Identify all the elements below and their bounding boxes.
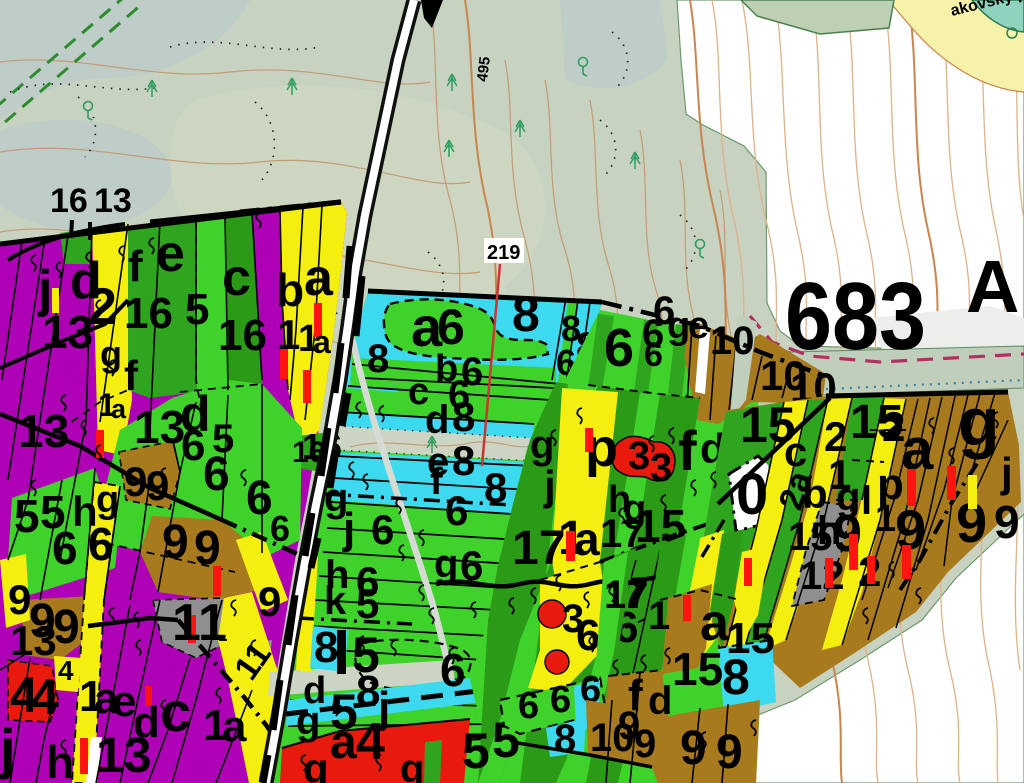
- svg-text:13: 13: [94, 182, 132, 220]
- svg-text:11: 11: [172, 594, 227, 652]
- svg-text:4: 4: [31, 669, 59, 725]
- svg-text:8: 8: [356, 667, 380, 716]
- svg-text:13: 13: [96, 727, 152, 783]
- svg-text:j: j: [1000, 449, 1013, 496]
- svg-text:16: 16: [124, 289, 173, 338]
- svg-text:6: 6: [181, 421, 205, 470]
- svg-text:9: 9: [53, 601, 80, 654]
- svg-text:3: 3: [650, 446, 672, 490]
- svg-text:5: 5: [462, 723, 490, 779]
- svg-text:8: 8: [452, 437, 475, 484]
- svg-text:g: g: [303, 745, 329, 783]
- svg-text:9: 9: [258, 578, 281, 625]
- svg-text:l: l: [861, 479, 872, 523]
- svg-text:13: 13: [10, 617, 57, 664]
- svg-text:d: d: [648, 679, 672, 723]
- svg-text:5: 5: [185, 285, 209, 334]
- svg-text:j: j: [342, 504, 355, 553]
- svg-text:6: 6: [52, 522, 78, 574]
- svg-text:g: g: [296, 699, 320, 743]
- svg-text:6: 6: [518, 685, 539, 727]
- svg-text:a: a: [574, 513, 600, 565]
- svg-text:a: a: [111, 394, 127, 424]
- svg-text:6: 6: [270, 508, 290, 549]
- svg-text:8: 8: [484, 464, 507, 511]
- svg-text:9: 9: [994, 496, 1020, 548]
- svg-text:6: 6: [246, 472, 273, 525]
- svg-text:5: 5: [14, 490, 40, 542]
- svg-text:f: f: [128, 242, 143, 291]
- svg-text:f: f: [678, 419, 697, 482]
- svg-text:2: 2: [88, 278, 117, 336]
- svg-text:f: f: [124, 352, 139, 399]
- svg-text:f: f: [430, 461, 443, 503]
- svg-text:13: 13: [18, 405, 69, 457]
- svg-text:k: k: [324, 579, 347, 623]
- svg-text:3: 3: [628, 434, 650, 478]
- svg-text:6: 6: [371, 506, 394, 553]
- svg-text:8: 8: [452, 393, 475, 440]
- svg-text:a: a: [901, 417, 934, 482]
- svg-text:8: 8: [554, 717, 576, 761]
- svg-text:e: e: [156, 225, 185, 283]
- svg-text:8: 8: [367, 337, 389, 381]
- svg-text:9: 9: [680, 722, 707, 775]
- svg-text:0: 0: [736, 462, 768, 527]
- svg-text:j: j: [0, 717, 16, 780]
- svg-text:g: g: [667, 305, 690, 347]
- svg-text:9: 9: [8, 576, 31, 623]
- svg-text:g: g: [434, 542, 458, 586]
- svg-text:16: 16: [218, 311, 267, 360]
- svg-text:1: 1: [277, 311, 300, 358]
- svg-text:a: a: [330, 716, 357, 769]
- svg-text:1: 1: [875, 498, 896, 540]
- svg-text:6: 6: [445, 487, 468, 534]
- svg-text:4: 4: [58, 655, 74, 686]
- svg-text:a: a: [222, 702, 247, 751]
- svg-text:5: 5: [356, 580, 379, 627]
- svg-text:j: j: [543, 462, 556, 509]
- svg-text:c: c: [222, 249, 251, 307]
- svg-text:h: h: [46, 736, 74, 783]
- svg-text:6: 6: [550, 679, 571, 721]
- svg-text:g: g: [96, 479, 119, 521]
- svg-text:a: a: [313, 324, 331, 360]
- svg-text:a: a: [304, 249, 334, 307]
- svg-text:9: 9: [124, 458, 147, 505]
- svg-text:9: 9: [716, 726, 743, 779]
- svg-text:495: 495: [474, 56, 494, 83]
- svg-text:17: 17: [604, 573, 649, 617]
- svg-text:16: 16: [50, 182, 88, 220]
- svg-text:4: 4: [356, 713, 385, 771]
- svg-text:8: 8: [512, 286, 540, 342]
- svg-text:6: 6: [440, 644, 466, 696]
- svg-text:c: c: [160, 680, 191, 743]
- svg-text:g: g: [958, 384, 1000, 460]
- svg-text:6: 6: [203, 448, 230, 501]
- svg-text:6: 6: [604, 318, 634, 378]
- svg-text:9: 9: [634, 722, 656, 766]
- svg-text:13: 13: [134, 401, 185, 453]
- svg-text:b: b: [276, 264, 304, 316]
- svg-text:8: 8: [314, 623, 338, 672]
- svg-text:8: 8: [722, 649, 750, 705]
- svg-text:9: 9: [194, 522, 221, 575]
- svg-text:219: 219: [487, 242, 520, 264]
- svg-text:6: 6: [88, 518, 114, 570]
- svg-text:6: 6: [437, 299, 465, 355]
- svg-text:9: 9: [162, 516, 189, 569]
- svg-text:g: g: [530, 423, 554, 467]
- svg-text:g: g: [400, 747, 424, 783]
- svg-text:6: 6: [644, 336, 663, 374]
- svg-text:d: d: [425, 398, 449, 442]
- svg-text:13: 13: [42, 306, 93, 358]
- svg-text:A: A: [966, 245, 1019, 328]
- svg-text:9: 9: [146, 462, 169, 509]
- svg-text:1: 1: [648, 594, 670, 638]
